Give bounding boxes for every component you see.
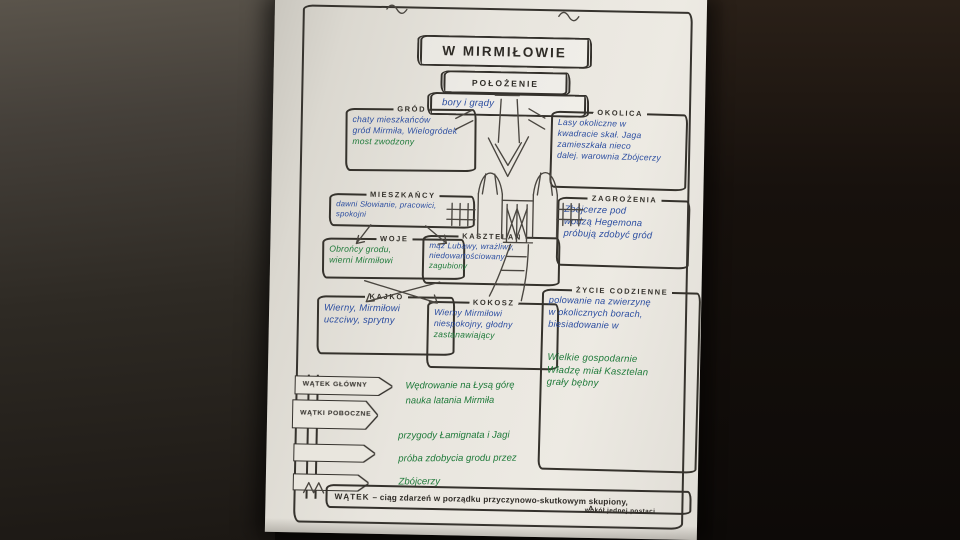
box-woje-title: WOJE bbox=[376, 234, 413, 243]
box-kasztelan-title: KASZTELAN bbox=[458, 231, 526, 241]
sign-blank-1 bbox=[294, 444, 374, 462]
desk-background-left bbox=[0, 0, 275, 540]
main-plot-note: Wędrowanie na Łysą górę nauka latania Mi… bbox=[405, 376, 555, 407]
box-zycie-line: biesiadowanie w bbox=[548, 318, 694, 334]
sign-label: WĄTKI POBOCZNE bbox=[293, 400, 378, 429]
box-kasztelan-line: zagubiony bbox=[429, 261, 554, 274]
box-kajko-title: KAJKO bbox=[365, 292, 407, 302]
box-kasztelan: KASZTELAN mąż Lubawy, wrażliwy, niedowar… bbox=[422, 231, 561, 287]
box-kokosz-line: zastanawiający bbox=[434, 329, 553, 342]
box-zagrozenia: ZAGROŻENIA Zbójcerze pod wodzą Hegemona … bbox=[556, 193, 691, 270]
box-okolica-line: dalej. warownia Zbójcerzy bbox=[557, 150, 681, 164]
box-zycie-line: grały bębny bbox=[547, 377, 693, 393]
watek-addendum: wokół jednej postaci bbox=[585, 507, 656, 515]
photo-of-mindmap: W MIRMIŁOWIE POŁOŻENIE bory i grądy GRÓD… bbox=[0, 0, 960, 540]
box-grod-line: most zwodzony bbox=[352, 136, 470, 148]
sign-watki-poboczne: WĄTKI POBOCZNE bbox=[293, 400, 378, 429]
sign-watek-glowny: WĄTEK GŁÓWNY bbox=[296, 376, 392, 395]
box-mieszkancy-title: MIESZKAŃCY bbox=[366, 190, 440, 200]
box-grod-title: GRÓD bbox=[393, 104, 430, 113]
side-plot-line: próba zdobycia grodu przez bbox=[398, 446, 558, 470]
sign-label bbox=[294, 444, 374, 462]
side-plot-note: przygody Łamignata i Jagi próba zdobycia… bbox=[398, 423, 558, 493]
page-title: W MIRMIŁOWIE bbox=[442, 43, 567, 60]
main-plot-line: nauka latania Mirmiła bbox=[406, 391, 556, 407]
box-zycie-codzienne: ŻYCIE CODZIENNE polowanie na zwierzynę w… bbox=[537, 285, 701, 474]
box-zagrozenia-line: próbują zdobyć gród bbox=[563, 227, 683, 243]
watek-term: WĄTEK bbox=[334, 492, 369, 502]
watek-definition-banner: WĄTEK – ciąg zdarzeń w porządku przyczyn… bbox=[325, 484, 691, 515]
location-label: POŁOŻENIE bbox=[472, 77, 539, 88]
title-banner: W MIRMIŁOWIE bbox=[417, 35, 593, 69]
box-okolica-title: OKOLICA bbox=[593, 108, 647, 118]
corner-squiggles bbox=[387, 5, 579, 21]
paper-sheet: W MIRMIŁOWIE POŁOŻENIE bory i grądy GRÓD… bbox=[265, 0, 707, 540]
box-mieszkancy: MIESZKAŃCY dawni Słowianie, pracowici, s… bbox=[329, 189, 476, 229]
desk-background-right bbox=[698, 0, 960, 540]
side-plot-line: przygody Łamignata i Jagi bbox=[398, 423, 558, 447]
box-grod: GRÓD chaty mieszkańców gród Mirmiła, Wie… bbox=[345, 104, 477, 172]
sign-label: WĄTEK GŁÓWNY bbox=[296, 376, 392, 395]
box-mieszkancy-line: spokojni bbox=[336, 209, 469, 222]
main-plot-line: Wędrowanie na Łysą górę bbox=[405, 376, 555, 392]
box-okolica: OKOLICA Lasy okoliczne w kwadracie skał.… bbox=[549, 107, 688, 192]
box-kokosz-title: KOKOSZ bbox=[469, 298, 519, 308]
